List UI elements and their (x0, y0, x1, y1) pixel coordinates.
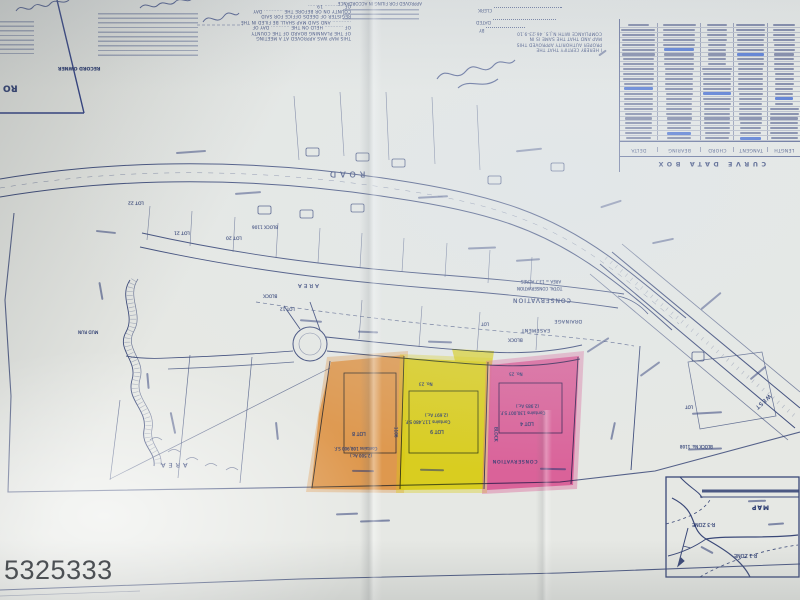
watermark-text: 5325333 (4, 555, 113, 586)
photo-lighting-vignette (0, 0, 800, 600)
plat-map-photo: ROADLOT 22LOT 21LOT 20BLOCK 1106AREABLOC… (0, 0, 800, 600)
